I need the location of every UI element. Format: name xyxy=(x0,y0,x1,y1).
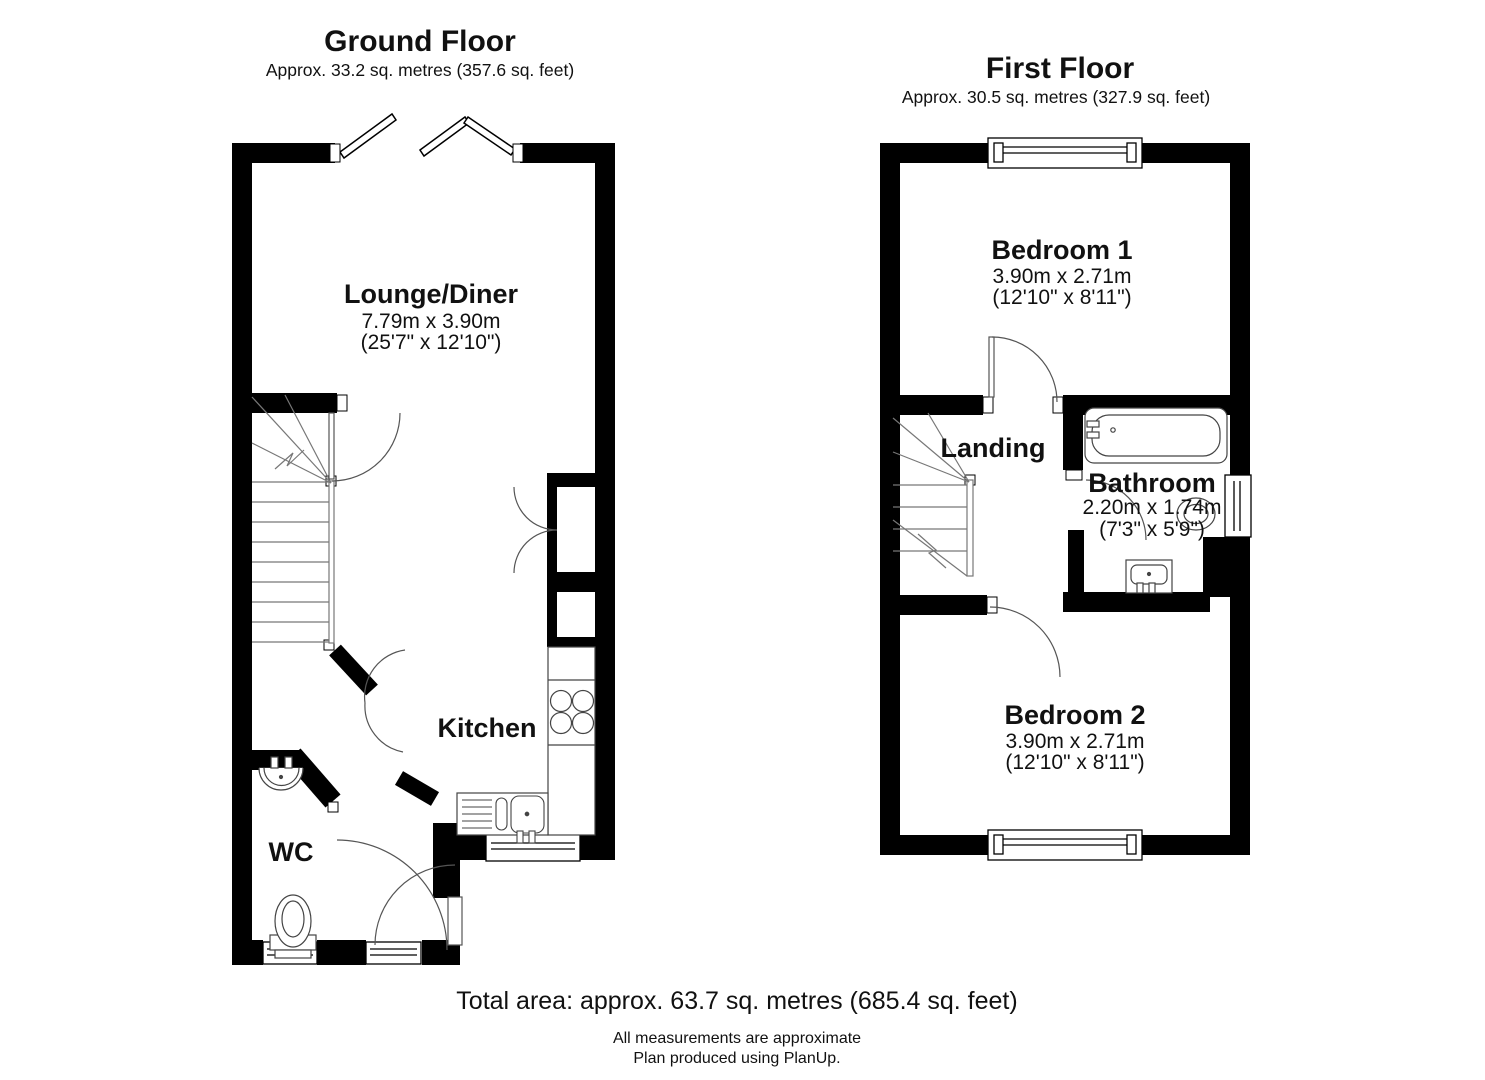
lounge-label: Lounge/Diner xyxy=(344,280,518,308)
kitchen-fixtures xyxy=(457,647,595,843)
bedroom2-window xyxy=(988,830,1142,860)
ground-floor-area: Approx. 33.2 sq. metres (357.6 sq. feet) xyxy=(266,61,574,79)
kitchen-label: Kitchen xyxy=(437,714,536,742)
bedroom2-label: Bedroom 2 xyxy=(1004,701,1145,729)
bathroom-basin xyxy=(1126,560,1172,593)
bedroom1-door xyxy=(989,337,1057,402)
ground-floor-title: Ground Floor xyxy=(324,26,516,58)
bath xyxy=(1085,408,1227,463)
stair-direction-arrow xyxy=(275,450,304,469)
producer-note: Plan produced using PlanUp. xyxy=(633,1051,840,1068)
patio-door-leaf xyxy=(340,114,396,158)
ground-floor-stairs xyxy=(252,395,334,643)
kitchen-door xyxy=(365,650,405,752)
bedroom1-label: Bedroom 1 xyxy=(991,236,1132,264)
bedroom1-window xyxy=(988,138,1142,168)
first-floor-title: First Floor xyxy=(986,53,1134,85)
bedroom2-dims-metric: 3.90m x 2.71m xyxy=(1006,731,1145,753)
bedroom2-door xyxy=(990,607,1060,677)
first-floor-area: Approx. 30.5 sq. metres (327.9 sq. feet) xyxy=(902,88,1210,106)
bathroom-label: Bathroom xyxy=(1088,469,1216,497)
measurements-note: All measurements are approximate xyxy=(613,1031,861,1048)
lounge-dims-metric: 7.79m x 3.90m xyxy=(362,311,501,333)
wc-toilet xyxy=(270,895,316,958)
patio-door-leaf xyxy=(420,117,469,156)
wc-label: WC xyxy=(269,838,314,866)
stair-door xyxy=(329,413,400,481)
hall-window xyxy=(366,942,421,964)
patio-doors xyxy=(340,114,515,158)
bedroom2-dims-imperial: (12'10" x 8'11") xyxy=(1005,752,1144,774)
bathroom-window xyxy=(1225,475,1251,537)
total-area-label: Total area: approx. 63.7 sq. metres (685… xyxy=(456,988,1017,1014)
bathroom-dims-imperial: (7'3" x 5'9") xyxy=(1099,519,1205,541)
lounge-dims-imperial: (25'7" x 12'10") xyxy=(361,332,502,354)
landing-label: Landing xyxy=(941,434,1046,462)
bedroom1-dims-metric: 3.90m x 2.71m xyxy=(993,266,1132,288)
bathroom-dims-metric: 2.20m x 1.74m xyxy=(1083,497,1222,519)
bedroom1-dims-imperial: (12'10" x 8'11") xyxy=(992,287,1131,309)
patio-door-leaf xyxy=(464,117,515,155)
floorplan-page: Ground Floor Approx. 33.2 sq. metres (35… xyxy=(0,0,1485,1080)
